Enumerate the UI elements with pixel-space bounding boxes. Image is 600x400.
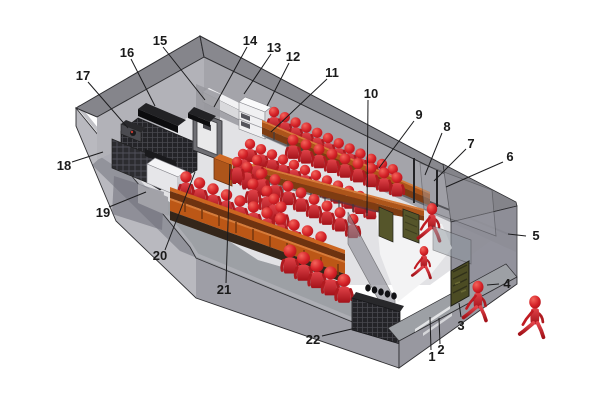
svg-text:1: 1 bbox=[428, 349, 435, 364]
svg-text:19: 19 bbox=[96, 205, 110, 220]
svg-text:7: 7 bbox=[467, 136, 474, 151]
svg-text:4: 4 bbox=[503, 276, 511, 291]
svg-text:5: 5 bbox=[532, 228, 539, 243]
svg-text:2: 2 bbox=[437, 342, 444, 357]
svg-text:9: 9 bbox=[415, 107, 422, 122]
svg-text:11: 11 bbox=[325, 65, 339, 80]
svg-text:21: 21 bbox=[217, 282, 231, 297]
svg-text:18: 18 bbox=[57, 158, 71, 173]
svg-text:22: 22 bbox=[306, 332, 320, 347]
svg-text:20: 20 bbox=[153, 248, 167, 263]
svg-text:8: 8 bbox=[443, 119, 450, 134]
svg-text:16: 16 bbox=[120, 45, 134, 60]
svg-text:3: 3 bbox=[457, 318, 464, 333]
svg-text:10: 10 bbox=[364, 86, 378, 101]
svg-text:17: 17 bbox=[76, 68, 90, 83]
svg-text:15: 15 bbox=[153, 33, 167, 48]
svg-text:14: 14 bbox=[243, 33, 258, 48]
svg-text:6: 6 bbox=[506, 149, 513, 164]
svg-text:12: 12 bbox=[286, 49, 300, 64]
svg-text:13: 13 bbox=[267, 40, 281, 55]
